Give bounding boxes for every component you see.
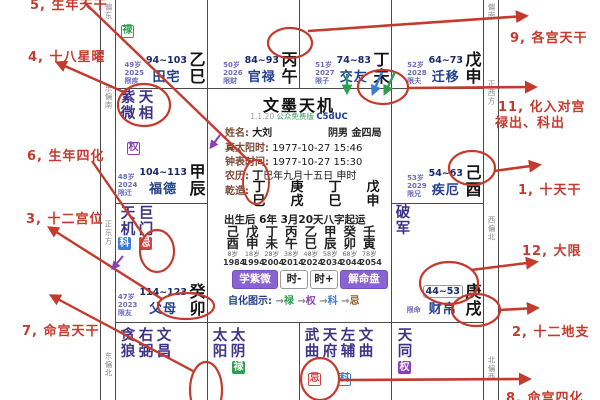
selfhua-arrow-purple-chen (211, 135, 220, 147)
ziwei-chart-screenshot: 偏东 东偏南 正东方 东偏北 偏南 正西方 西偏北 北偏西 禄 49岁2025限… (0, 0, 600, 400)
circle-ji-badge-zi (301, 358, 339, 400)
circle-stem-ji (449, 151, 495, 185)
annotation-3-twelve-palaces: 3, 十二宫位 (26, 208, 104, 227)
annotation-11-luchu-kechu: 禄出、科出 (495, 112, 565, 131)
arrow-5-year-stem (84, 2, 250, 162)
circle-ming-stem (190, 362, 222, 400)
arrow-8-ming-sihua (340, 379, 528, 380)
annotation-2-twelve-branches: 2, 十二地支 (512, 321, 590, 340)
arrow-1-ten-stems (494, 165, 538, 171)
circle-fumu-name (158, 293, 214, 319)
circle-hua-arrows (358, 70, 408, 104)
arrow-2-branches (499, 308, 536, 310)
selfhua-arrow-purple-mao (113, 256, 123, 268)
annotation-7-ming-stem: 7, 命宫天干 (22, 320, 100, 339)
annotation-5-year-stem: 5, 生年天干 (30, 0, 108, 13)
annotation-6-birth-sihua: 6, 生年四化 (27, 145, 105, 164)
circle-year-stem-ding (243, 160, 269, 204)
annotation-12-decade: 12, 大限 (522, 240, 582, 259)
arrow-3-palaces (50, 228, 162, 299)
circle-stem-bing (268, 28, 312, 58)
hua-arrow-lu-green (385, 72, 395, 93)
circle-ji-badge-mao (140, 230, 174, 272)
annotation-1-ten-stems: 1, 十天干 (518, 179, 582, 198)
circle-branch-xu (452, 294, 500, 326)
circle-ziwei-tianxiang (118, 84, 170, 126)
annotation-9-palace-stems: 9, 各宫天干 (510, 27, 588, 46)
arrow-11-hua-out (407, 87, 534, 88)
arrow-4-stars (58, 63, 126, 93)
arrow-12-decade (471, 262, 535, 270)
circle-decade-range (420, 262, 478, 304)
hua-arrow-ke-blue (373, 72, 382, 93)
annotation-4-eighteen-stars: 4, 十八星曜 (28, 46, 106, 65)
annotation-8-ming-sihua: 8, 命宫四化 (506, 387, 584, 400)
arrow-9-palace-stems (308, 16, 525, 31)
